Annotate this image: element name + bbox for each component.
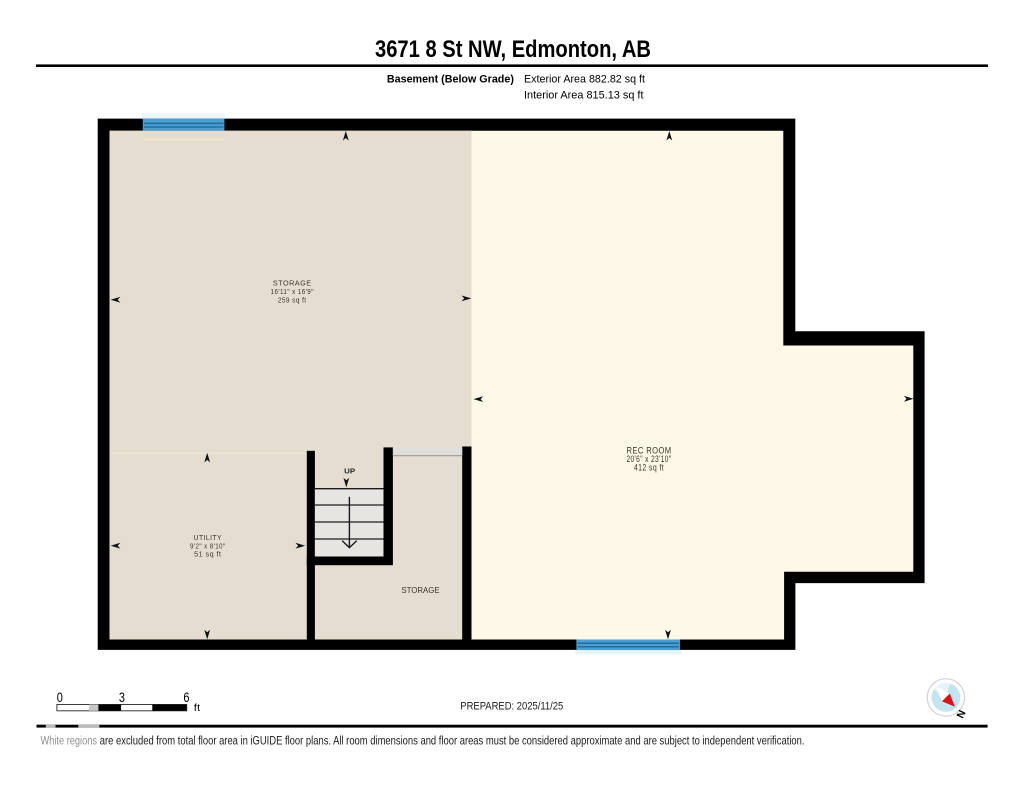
svg-text:3: 3	[119, 690, 125, 705]
svg-text:Exterior Area 882.82 sq ft: Exterior Area 882.82 sq ft	[524, 74, 645, 86]
svg-text:Interior Area 815.13 sq ft: Interior Area 815.13 sq ft	[524, 89, 644, 101]
svg-text:UP: UP	[344, 467, 355, 476]
svg-text:are excluded from total floor: are excluded from total floor area in iG…	[100, 733, 805, 747]
svg-text:White regions: White regions	[41, 733, 98, 747]
svg-text:Basement (Below Grade): Basement (Below Grade)	[387, 74, 514, 86]
svg-text:0: 0	[57, 690, 63, 705]
svg-text:3671 8 St NW, Edmonton, AB: 3671 8 St NW, Edmonton, AB	[375, 36, 651, 63]
svg-text:51 sq ft: 51 sq ft	[194, 550, 222, 559]
svg-text:PREPARED: 2025/11/25: PREPARED: 2025/11/25	[460, 700, 563, 712]
svg-text:259 sq ft: 259 sq ft	[278, 296, 307, 305]
svg-text:6: 6	[183, 690, 189, 705]
svg-text:ft: ft	[194, 702, 200, 714]
svg-text:412 sq ft: 412 sq ft	[634, 463, 664, 473]
svg-text:STORAGE: STORAGE	[401, 586, 440, 595]
